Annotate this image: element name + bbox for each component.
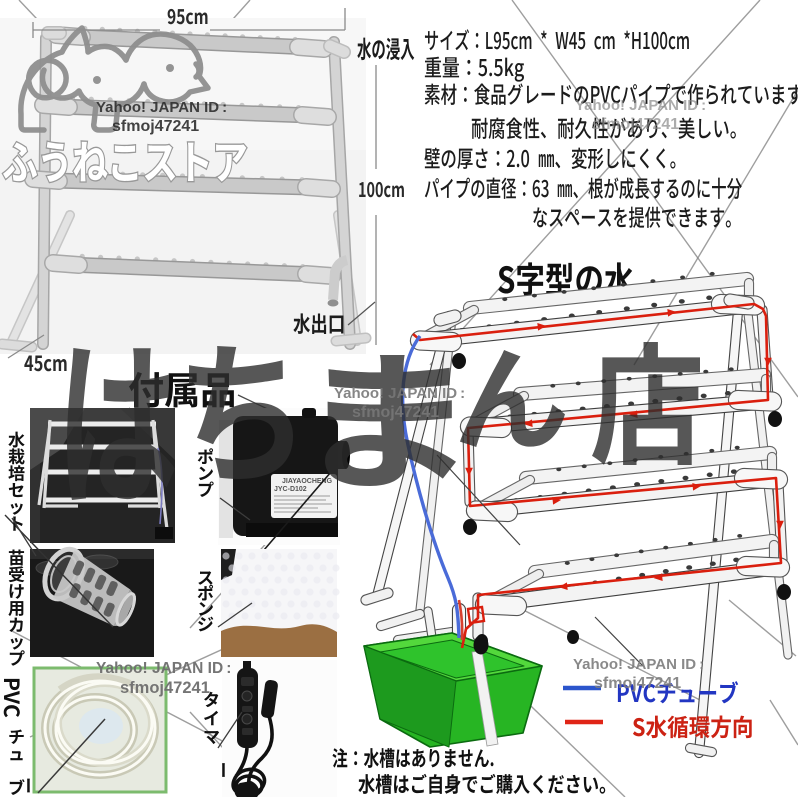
svg-text:Yahoo! JAPAN ID :: Yahoo! JAPAN ID : <box>96 99 227 116</box>
svg-text:Yahoo! JAPAN ID :: Yahoo! JAPAN ID : <box>96 660 231 677</box>
svg-text:Yahoo! JAPAN ID :: Yahoo! JAPAN ID : <box>334 385 465 402</box>
svg-text:sfmoj47241: sfmoj47241 <box>592 116 679 133</box>
svg-text:Yahoo! JAPAN ID :: Yahoo! JAPAN ID : <box>575 97 706 114</box>
svg-text:sfmoj47241: sfmoj47241 <box>594 675 681 692</box>
svg-text:JYC-D102: JYC-D102 <box>274 486 307 493</box>
svg-text:sfmoj47241: sfmoj47241 <box>112 118 199 135</box>
svg-text:Yahoo! JAPAN ID :: Yahoo! JAPAN ID : <box>573 656 704 673</box>
svg-text:sfmoj47241: sfmoj47241 <box>352 404 439 421</box>
svg-text:sfmoj47241: sfmoj47241 <box>120 679 210 697</box>
